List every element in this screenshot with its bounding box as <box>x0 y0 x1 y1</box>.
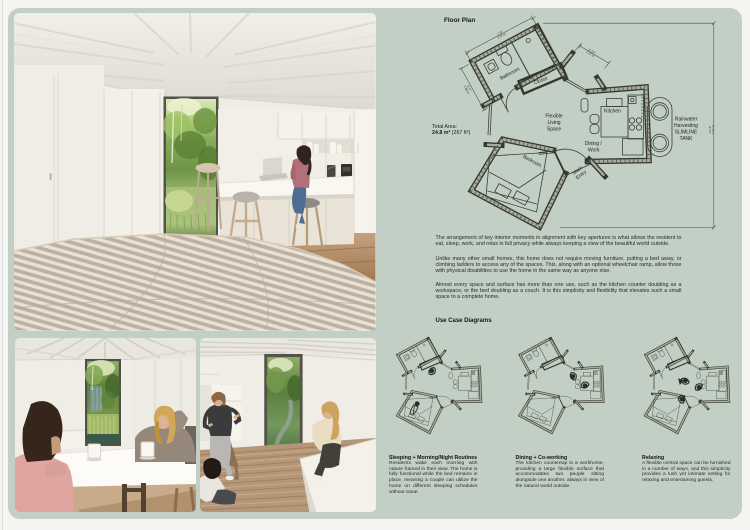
svg-text:Dining /: Dining / <box>585 141 603 147</box>
svg-text:Rainwater: Rainwater <box>675 117 698 123</box>
svg-text:7.21 m: 7.21 m <box>711 124 715 134</box>
svg-text:Space: Space <box>547 127 561 133</box>
svg-text:Kitchen: Kitchen <box>604 109 621 115</box>
svg-text:Bedroom: Bedroom <box>522 154 543 169</box>
svg-text:Bathroom: Bathroom <box>499 66 521 82</box>
svg-text:TANK: TANK <box>680 136 694 142</box>
svg-text:Harvesting: Harvesting <box>674 123 698 129</box>
svg-text:SLIMLINE: SLIMLINE <box>675 130 698 136</box>
svg-text:Living: Living <box>547 120 560 126</box>
svg-text:Flexible: Flexible <box>545 114 562 120</box>
svg-text:Work: Work <box>588 147 600 153</box>
